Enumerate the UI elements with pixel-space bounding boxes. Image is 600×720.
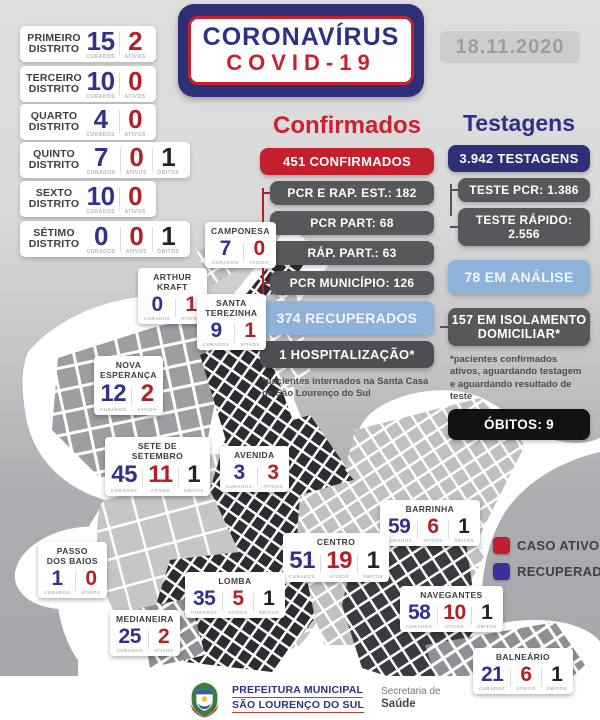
testing-total-pill: 3.942 TESTAGENS bbox=[448, 145, 590, 172]
title-coronavirus: CORONAVÍRUS bbox=[203, 24, 400, 50]
legend-recovered-label: RECUPERADO bbox=[517, 564, 600, 579]
map-card-camponesa: CAMPONESA 7CURADOS 0ATIVOS bbox=[205, 222, 276, 268]
city-hall-name: PREFEITURA MUNICIPAL SÃO LOURENÇO DO SUL bbox=[232, 684, 364, 714]
district-card-setimo: SÉTIMO DISTRITO 0CURADOS 0ATIVOS 1ÓBITOS bbox=[20, 221, 190, 257]
recovered-swatch bbox=[493, 563, 510, 580]
deaths-pill: ÓBITOS: 9 bbox=[448, 409, 590, 440]
map-card-navegantes: NAVEGANTES 58CURADOS 10ATIVOS 1ÓBITOS bbox=[400, 586, 503, 632]
map-card-balneario: BALNEÁRIO 21CURADOS 6ATIVOS 1ÓBITOS bbox=[473, 648, 573, 694]
isolation-pill: 157 EM ISOLAMENTO DOMICILIAR* bbox=[448, 308, 590, 346]
district-card-primeiro: PRIMEIRO DISTRITO 15CURADOS 2ATIVOS bbox=[20, 26, 156, 62]
health-department: Secretaria de Saúde bbox=[381, 686, 440, 712]
map-card-passo-dos-baios: PASSO DOS BAIOS 1CURADOS 0ATIVOS bbox=[38, 542, 107, 598]
district-name: PRIMEIRO DISTRITO bbox=[26, 33, 82, 56]
map-legend: CASO ATIVO RECUPERADO bbox=[493, 537, 600, 589]
testing-breakdown-pill: TESTE PCR: 1.386 bbox=[458, 178, 590, 202]
confirmed-title: Confirmados bbox=[260, 112, 434, 140]
active-case-swatch bbox=[493, 537, 510, 554]
map-card-avenida: AVENIDA 3CURADOS 3ATIVOS bbox=[220, 446, 289, 492]
district-card-terceiro: TERCEIRO DISTRITO 10CURADOS 0ATIVOS bbox=[20, 66, 156, 102]
legend-active-label: CASO ATIVO bbox=[517, 538, 599, 553]
testing-breakdown-pill: TESTE RÁPIDO: 2.556 bbox=[458, 208, 590, 246]
analysis-pill: 78 EM ANÁLISE bbox=[448, 260, 590, 294]
map-card-sete-de-setembro: SETE DE SETEMBRO 45CURADOS 11ATIVOS 1ÓBI… bbox=[105, 437, 210, 496]
city-crest-icon bbox=[186, 679, 223, 719]
footer: PREFEITURA MUNICIPAL SÃO LOURENÇO DO SUL… bbox=[186, 679, 441, 719]
testing-panel: Testagens 3.942 TESTAGENS TESTE PCR: 1.3… bbox=[448, 110, 590, 440]
district-card-sexto: SEXTO DISTRITO 10CURADOS 0ATIVOS bbox=[20, 181, 156, 217]
district-card-quinto: QUINTO DISTRITO 7CURADOS 0ATIVOS 1ÓBITOS bbox=[20, 142, 190, 178]
map-card-barrinha: BARRINHA 59CURADOS 6ATIVOS 1ÓBITOS bbox=[380, 500, 480, 546]
testing-footnote: *pacientes confirmados ativos, aguardand… bbox=[448, 352, 590, 403]
district-card-quarto: QUARTO DISTRITO 4CURADOS 0ATIVOS bbox=[20, 104, 156, 140]
map-card-santa-terezinha: SANTA TEREZINHA 9CURADOS 1ATIVOS bbox=[197, 294, 266, 350]
confirmed-breakdown-pill: PCR PART: 68 bbox=[270, 211, 434, 235]
confirmed-breakdown-pill: PCR E RAP. EST.: 182 bbox=[270, 181, 434, 205]
report-date: 18.11.2020 bbox=[440, 31, 580, 63]
confirmed-breakdown-pill: RÁP. PART.: 63 bbox=[270, 241, 434, 265]
confirmed-panel: Confirmados 451 CONFIRMADOS PCR E RAP. E… bbox=[260, 112, 434, 401]
title-covid19: COVID-19 bbox=[203, 51, 400, 75]
confirmed-footnote: *pacientes internados na Santa Casa de S… bbox=[260, 374, 434, 401]
hospitalization-pill: 1 HOSPITALIZAÇÃO* bbox=[260, 341, 434, 368]
map-card-centro: CENTRO 51CURADOS 19ATIVOS 1ÓBITOS bbox=[283, 533, 389, 582]
recovered-pill: 374 RECUPERADOS bbox=[260, 301, 434, 335]
confirmed-breakdown-pill: PCR MUNICÍPIO: 126 bbox=[270, 271, 434, 295]
curados-value: 15 bbox=[87, 28, 115, 54]
obitos-value: 1 bbox=[161, 144, 175, 170]
map-card-nova-esperanca: NOVA ESPERANÇA 12CURADOS 2ATIVOS bbox=[94, 356, 163, 415]
title-banner: CORONAVÍRUS COVID-19 bbox=[178, 4, 424, 97]
map-card-medianeira: MEDIANEIRA 25CURADOS 2ATIVOS bbox=[110, 610, 180, 656]
ativos-value: 2 bbox=[128, 28, 142, 54]
covid-dashboard: PRIMEIRO DISTRITO 15CURADOS 2ATIVOS TERC… bbox=[0, 0, 600, 720]
testing-title: Testagens bbox=[448, 110, 590, 137]
confirmed-total-pill: 451 CONFIRMADOS bbox=[260, 148, 434, 175]
map-card-lomba: LOMBA 35CURADOS 5ATIVOS 1ÓBITOS bbox=[185, 572, 285, 618]
